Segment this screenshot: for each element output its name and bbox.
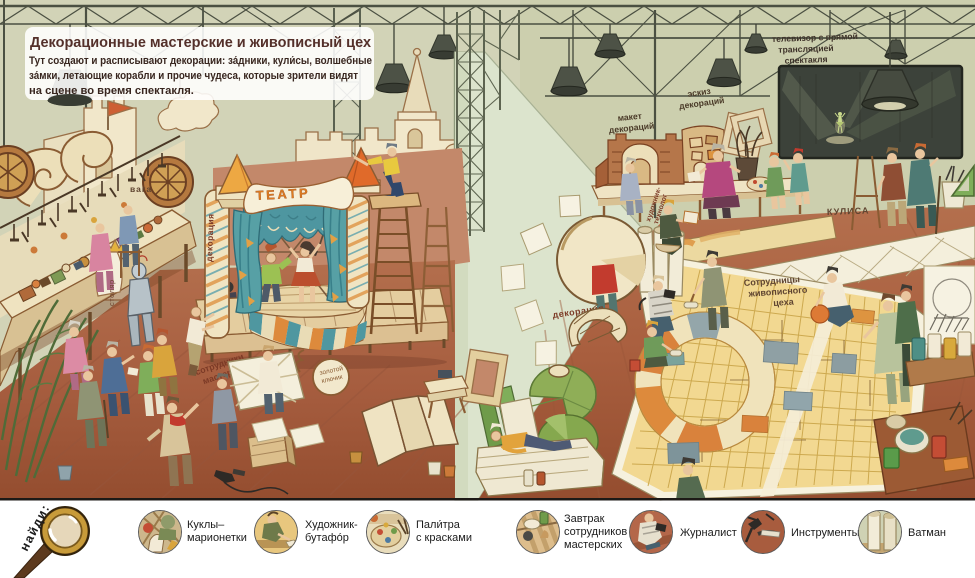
svg-text:ТЕАТР: ТЕАТР (255, 185, 310, 203)
svg-text:с красками: с красками (416, 532, 472, 544)
svg-text:декорация: декорация (204, 213, 216, 262)
svg-text:КУЛИСА: КУЛИСА (827, 206, 870, 217)
svg-text:столяр: столяр (107, 279, 116, 306)
svg-text:Журналист: Журналист (680, 527, 737, 539)
svg-text:мастерских: мастерских (564, 539, 623, 551)
svg-text:Ватман: Ватман (908, 527, 946, 539)
svg-text:Декорационные мастерские и жив: Декорационные мастерские и живописный це… (30, 35, 371, 51)
svg-text:за́мки, летающие корабли и про: за́мки, летающие корабли и прочие чудеса… (29, 70, 358, 82)
svg-text:бутафóр: бутафóр (305, 532, 349, 544)
svg-text:Инструменты: Инструменты (791, 527, 860, 539)
svg-text:Завтрак: Завтрак (564, 513, 605, 525)
svg-text:сотрудников: сотрудников (564, 526, 627, 538)
svg-text:на сцене во время спектакля.: на сцене во время спектакля. (29, 85, 194, 97)
svg-text:Пали́тра: Пали́тра (416, 519, 461, 531)
svg-text:спектакля: спектакля (784, 54, 827, 65)
svg-text:марионетки: марионетки (187, 532, 247, 544)
svg-text:Тут создают и расписывают деко: Тут создают и расписывают декорации: за́… (29, 55, 372, 67)
svg-text:цеха: цеха (773, 297, 795, 308)
svg-text:Куклы–: Куклы– (187, 519, 225, 531)
svg-text:вага: вага (130, 184, 152, 194)
svg-text:Художник-: Художник- (305, 519, 358, 531)
svg-text:трансляцией: трансляцией (778, 43, 834, 55)
